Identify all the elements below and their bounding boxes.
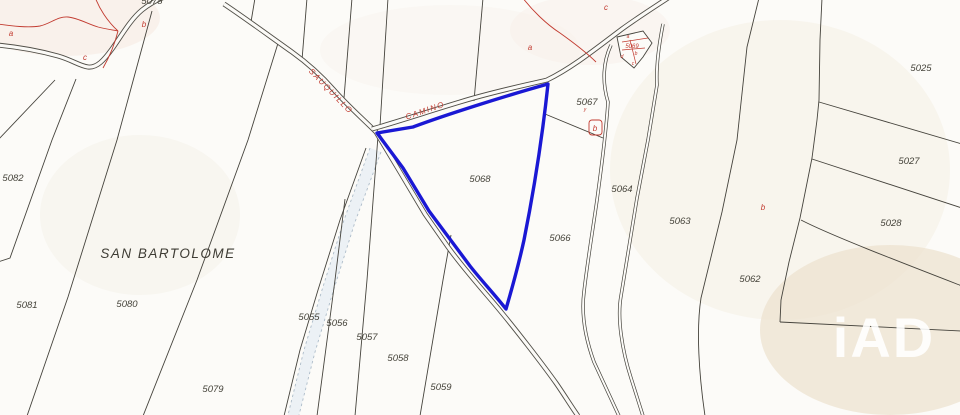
subparcel-letter-b-boxed: b [593,124,598,133]
subparcel-letter-c: c [604,3,608,12]
parcel-label-5068: 5068 [469,174,491,185]
boundary-line [0,80,55,140]
parcel-label-5025: 5025 [910,63,932,74]
boundary-line [302,0,307,60]
parcel-label-5027: 5027 [898,156,920,167]
parcel-label-5082: 5082 [2,173,24,184]
subparcel-letter-a: a [528,43,533,52]
parcel-label-5062: 5062 [739,274,761,285]
boundary-line [251,0,255,22]
parcel-label-5066: 5066 [549,233,571,244]
subparcel-letter-b: b [142,20,147,29]
building-parcel-number: 5069 [625,44,639,50]
parcel-label-5028: 5028 [880,218,902,229]
parcel-label-5081: 5081 [16,300,37,311]
parcel-label-5056: 5056 [326,318,348,329]
subparcel-mark-y: y [583,107,587,113]
cadastral-map-viewport: 5078 5082 5081 5080 5079 5055 5056 5057 … [0,0,960,415]
subparcel-letter-c: c [83,53,87,62]
parcel-label-5063: 5063 [669,216,691,227]
cadastral-map: 5078 5082 5081 5080 5079 5055 5056 5057 … [0,0,960,415]
parcel-label-5059: 5059 [430,382,452,393]
building-letter-d: d [621,54,624,60]
parcel-label-5078: 5078 [141,0,163,7]
building-letter-a: a [627,34,630,40]
parcel-label-5057: 5057 [356,332,378,343]
building-letter-b: b [635,51,638,57]
parcel-label-5064: 5064 [611,184,632,195]
parcel-label-5080: 5080 [116,299,138,310]
place-name-label: SAN BARTOLOME [100,246,235,261]
subparcel-letter-a: a [9,29,14,38]
subparcel-letter-b: b [761,203,766,212]
parcel-label-5067: 5067 [576,97,598,108]
paper-tint-patches [0,0,960,415]
tint-patch [40,135,240,295]
iad-watermark: iAD [833,306,935,369]
parcel-label-5055: 5055 [298,312,320,323]
stream-right-dash [299,152,381,415]
parcel-label-5058: 5058 [387,353,409,364]
parcel-label-5079: 5079 [202,384,224,395]
